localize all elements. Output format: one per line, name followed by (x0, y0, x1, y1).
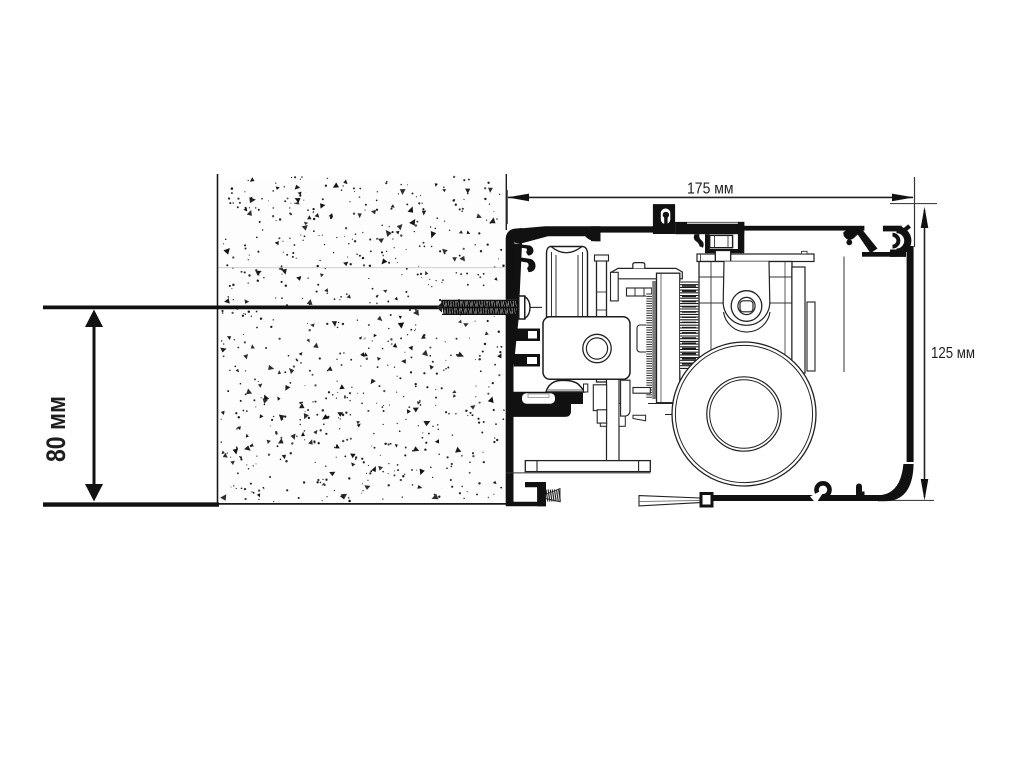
svg-text:80 мм: 80 мм (41, 396, 71, 462)
svg-text:175 мм: 175 мм (687, 181, 734, 198)
svg-text:125 мм: 125 мм (931, 345, 975, 362)
